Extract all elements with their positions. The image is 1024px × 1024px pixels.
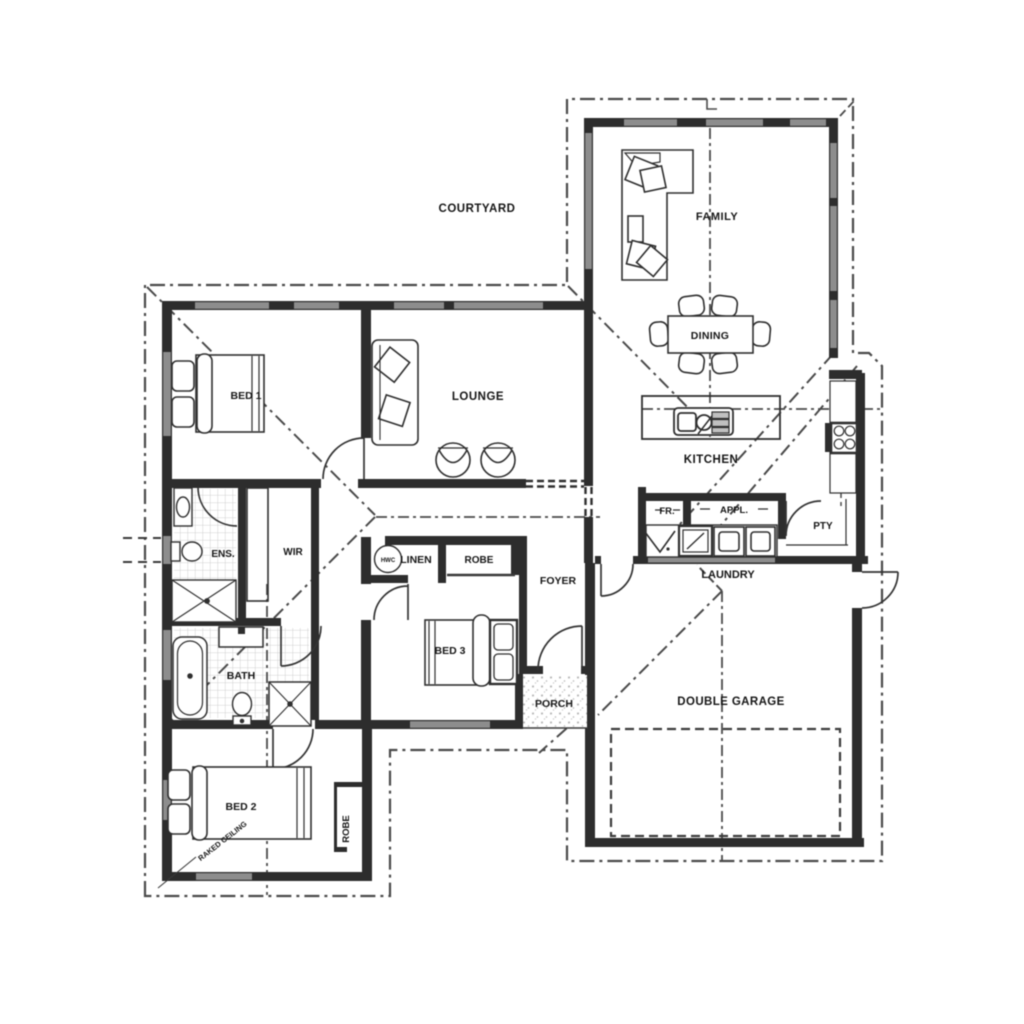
svg-text:FAMILY: FAMILY [696, 211, 738, 223]
svg-text:PORCH: PORCH [535, 698, 573, 710]
svg-text:LAUNDRY: LAUNDRY [701, 569, 755, 581]
svg-text:LOUNGE: LOUNGE [452, 391, 504, 403]
svg-text:BED 3: BED 3 [435, 645, 466, 657]
svg-text:FOYER: FOYER [540, 575, 577, 587]
svg-text:KITCHEN: KITCHEN [684, 454, 739, 466]
svg-text:APPL.: APPL. [720, 505, 748, 516]
svg-text:LINEN: LINEN [400, 554, 432, 566]
svg-text:PTY: PTY [813, 521, 833, 532]
svg-text:BED 1: BED 1 [231, 390, 262, 402]
svg-text:FR.: FR. [659, 506, 674, 517]
svg-text:DOUBLE GARAGE: DOUBLE GARAGE [677, 696, 784, 708]
svg-text:ENS.: ENS. [211, 549, 235, 560]
svg-text:HWC: HWC [381, 558, 396, 564]
svg-text:DINING: DINING [691, 330, 730, 342]
svg-text:COURTYARD: COURTYARD [439, 203, 516, 215]
svg-text:WIR: WIR [283, 547, 303, 558]
svg-text:ROBE: ROBE [341, 815, 352, 842]
svg-text:BED 2: BED 2 [226, 801, 257, 813]
svg-text:ROBE: ROBE [465, 555, 494, 566]
svg-text:BATH: BATH [227, 670, 255, 682]
